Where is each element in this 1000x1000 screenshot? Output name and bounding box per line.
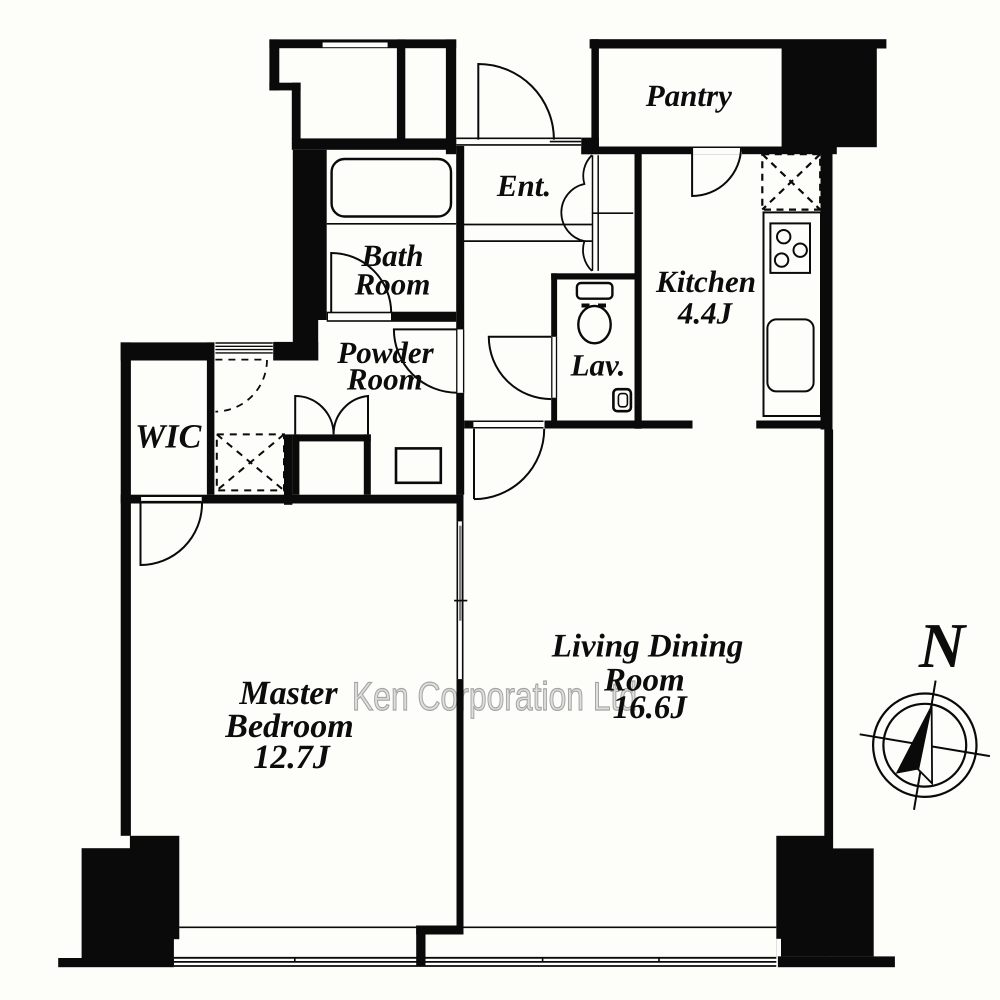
svg-text:Pantry: Pantry (645, 78, 732, 113)
svg-text:Ken Corporation Ltd.: Ken Corporation Ltd. (352, 675, 646, 719)
svg-text:Lav.: Lav. (570, 347, 626, 382)
svg-text:12.7J: 12.7J (253, 739, 331, 776)
svg-text:Room: Room (354, 267, 431, 302)
svg-text:Living Dining: Living Dining (551, 629, 744, 665)
svg-text:N: N (918, 610, 968, 681)
svg-text:Ent.: Ent. (496, 168, 551, 203)
svg-text:Master: Master (238, 675, 338, 712)
svg-text:Kitchen: Kitchen (655, 264, 756, 299)
svg-text:Room: Room (346, 361, 423, 396)
svg-text:16.6J: 16.6J (613, 690, 689, 726)
svg-text:WIC: WIC (135, 419, 201, 456)
svg-text:4.4J: 4.4J (677, 296, 734, 331)
